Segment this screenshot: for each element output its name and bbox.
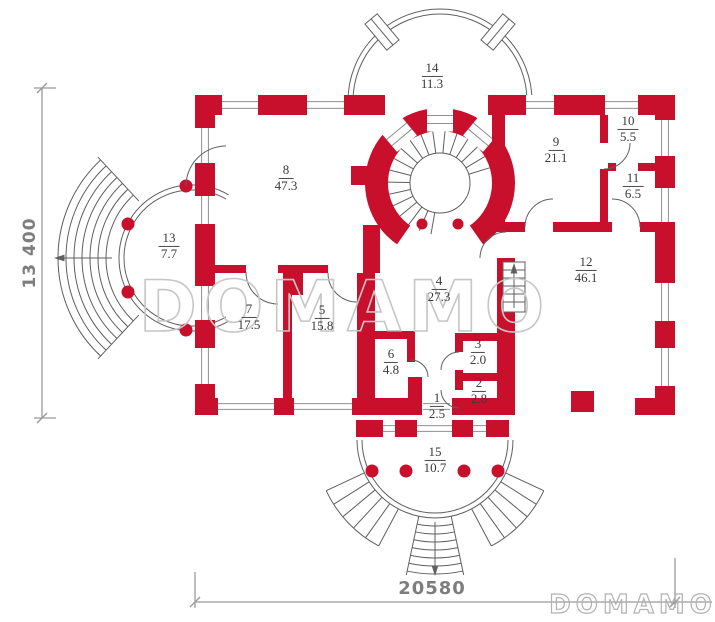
watermark-corner: DOMAMO <box>549 590 715 620</box>
floor-plan-drawing: 13 400 20580 DOMAMO DOMAMO <box>0 0 715 622</box>
watermark-center: DOMAMO <box>139 266 552 348</box>
floor-plan-page: 13 400 20580 DOMAMO DOMAMO 12.522.832.04… <box>0 0 715 622</box>
dimension-height-label: 13 400 <box>20 217 40 288</box>
dimension-width-label: 20580 <box>398 578 466 599</box>
